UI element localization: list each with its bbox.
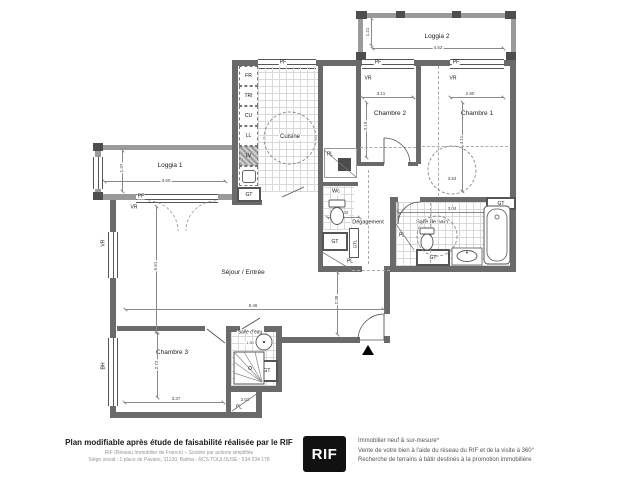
closet-diagonal (396, 224, 414, 250)
toilet-icon (331, 208, 344, 225)
dressing-circle (428, 146, 476, 194)
door-leaf (207, 329, 225, 343)
door-leaf (282, 187, 304, 197)
closet-diagonal (324, 150, 356, 177)
footer-legal-line1: RIF (Réseau Immobilier de France) – Soci… (58, 450, 300, 456)
entrance-arrow-icon (362, 345, 374, 355)
footer-headline: Plan modifiable après étude de faisabili… (58, 438, 300, 447)
floor-plan-page: Loggia 2 4.52 1.21 Loggia 1 3.60 1.37 PF (0, 0, 640, 480)
door-leaf (242, 318, 260, 329)
fixtures-overlay (0, 0, 640, 430)
closet-diagonal (232, 393, 258, 411)
door-arc (398, 202, 420, 224)
door-arc (384, 138, 410, 164)
service-line: Vente de votre bien à l'aide du réseau d… (358, 447, 534, 457)
closet-diagonal (322, 252, 352, 270)
rif-logo: RIF (303, 436, 346, 472)
door-swing-dashed (186, 201, 216, 231)
tap-icon (263, 341, 265, 343)
toilet-icon (421, 234, 433, 250)
service-line: Recherche de terrains à bâtir destinés à… (358, 456, 534, 466)
door-swing-dashed (148, 201, 178, 231)
tap-icon (466, 252, 468, 254)
toilet-icon (329, 200, 345, 207)
footer-services: Immobilier neuf & sur-mesure* Vente de v… (358, 437, 534, 466)
footer-legal-line2: Siège social : 1 place de Pavans, 31130,… (58, 457, 300, 463)
table-circle (264, 112, 316, 164)
toilet-icon (420, 228, 434, 234)
door-arc (358, 314, 384, 340)
service-line: Immobilier neuf & sur-mesure* (358, 437, 534, 447)
